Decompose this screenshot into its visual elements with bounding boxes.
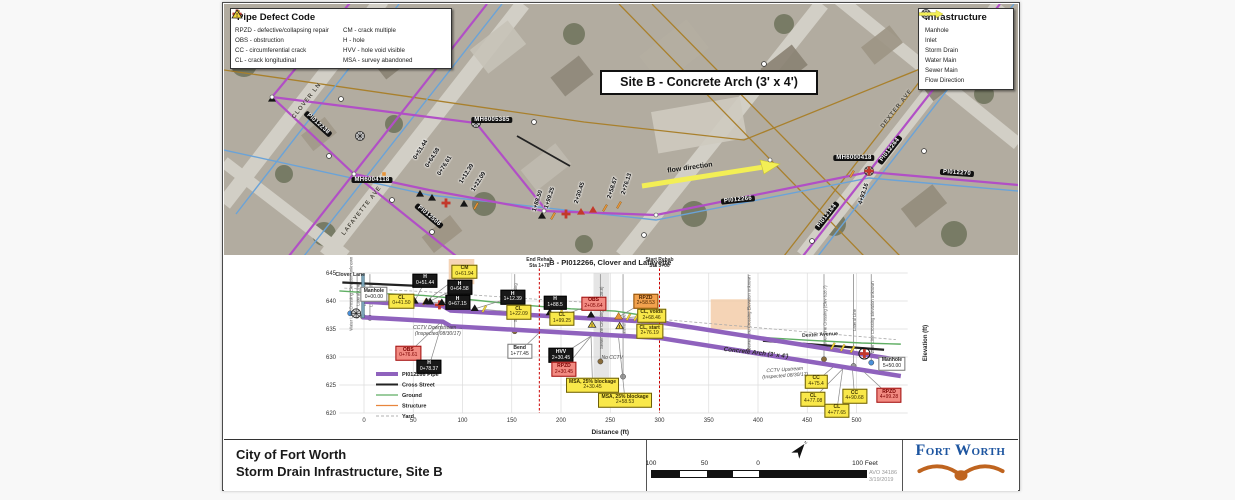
fort-worth-logo: Fort Worth	[903, 440, 1018, 491]
svg-text:Water Line Crossing Elevation: Water Line Crossing Elevation unknown	[870, 281, 875, 356]
defect-code-cl: CL - crack longitudinal	[233, 55, 341, 65]
map-marker-crossRed	[442, 199, 451, 208]
north-arrow-icon: N	[789, 441, 809, 461]
y-tick-label: 620	[326, 411, 337, 417]
infra-item-label: Flow Direction	[925, 77, 964, 84]
series-pipe-top	[362, 302, 901, 361]
x-tick-label: 450	[802, 418, 813, 424]
map-marker-manhole	[472, 119, 481, 128]
title-block-text: City of Fort Worth Storm Drain Infrastru…	[224, 440, 647, 491]
aerial-map: PI012238MH6005385MH6004118PI012506PI0122…	[224, 4, 1018, 256]
infra-item-label: Storm Drain	[925, 47, 958, 54]
pipe-defect-marker-dotTeal	[896, 358, 901, 363]
leader-line	[619, 338, 625, 400]
leader-line	[428, 287, 460, 302]
svg-text:350: 350	[704, 418, 715, 424]
map-marker-inlet	[339, 97, 344, 102]
leader-line	[853, 370, 855, 396]
pipe-defect-marker-triBlack	[546, 309, 554, 316]
leader-line	[520, 333, 539, 351]
svg-text:!: !	[236, 13, 238, 19]
page: PI012238MH6005385MH6004118PI012506PI0122…	[0, 0, 1235, 500]
defect-code-label: CL - crack longitudinal	[235, 57, 296, 64]
pipe-defect-legend-title: Pipe Defect Code	[231, 9, 451, 25]
svg-text:Ground: Ground	[402, 393, 422, 399]
svg-text:450: 450	[802, 418, 813, 424]
defect-code-label: H - hole	[343, 37, 365, 44]
map-marker-triBlack	[428, 194, 436, 201]
x-tick-label: 0	[362, 418, 366, 424]
map-marker-inlet	[327, 154, 332, 159]
x-tick-label: 500	[851, 418, 862, 424]
map-marker-dotWhite	[768, 158, 772, 162]
map-marker-manhole	[356, 132, 365, 141]
svg-text:100: 100	[457, 418, 468, 424]
infra-item-manhole: Manhole	[923, 25, 1009, 35]
leader-line	[816, 367, 833, 381]
map-marker-inlet	[762, 62, 767, 67]
defect-code-label: CC - circumferential crack	[235, 47, 306, 54]
defect-code-label: RPZD - defective/collapsing repair	[235, 27, 329, 34]
map-marker-inlet	[390, 198, 395, 203]
svg-text:150: 150	[507, 418, 518, 424]
map-marker-tickOrange	[616, 201, 621, 208]
scale-label: 50	[701, 460, 708, 467]
svg-text:630: 630	[326, 355, 337, 361]
scale-bar	[651, 470, 867, 478]
svg-text:250: 250	[605, 418, 616, 424]
x-tick-label: 250	[605, 418, 616, 424]
defect-code-rpzd: RPZD - defective/collapsing repair	[233, 25, 341, 35]
map-marker-tickOrange	[849, 170, 854, 177]
x-tick-label: 200	[556, 418, 567, 424]
map-marker-crossRed	[562, 210, 571, 219]
map-marker-dotWhite	[542, 209, 546, 213]
defect-code-obs: OBS - obstruction	[233, 35, 341, 45]
map-marker-triRed	[577, 208, 585, 215]
scale-label: 0	[756, 460, 760, 467]
svg-text:645: 645	[326, 271, 337, 277]
map-marker-sqOrange	[382, 172, 386, 176]
map-marker-inlet	[922, 149, 927, 154]
defect-code-hvv: HVV - hole void visible	[341, 45, 449, 55]
title-block: City of Fort Worth Storm Drain Infrastru…	[224, 439, 1018, 491]
map-marker-dotWhite	[270, 95, 274, 99]
map-marker-tickOrange	[550, 212, 555, 219]
x-tick-label: 350	[704, 418, 715, 424]
svg-text:PI012266 Pipe: PI012266 Pipe	[402, 372, 439, 378]
y-tick-label: 645	[326, 271, 337, 277]
map-marker-triBlack	[460, 200, 468, 207]
map-marker-inlet	[532, 120, 537, 125]
map-marker-inlet	[642, 233, 647, 238]
svg-text:0: 0	[362, 418, 366, 424]
y-tick-label: 640	[326, 299, 337, 305]
site-title: Site B - Concrete Arch (3' x 4')	[600, 70, 818, 95]
svg-text:Lateral Line: Lateral Line	[852, 308, 857, 331]
chart-title: B - PI012266, Clover and Lafayette	[549, 258, 671, 267]
x-tick-label: 300	[654, 418, 665, 424]
infra-item-storm-drain: Storm Drain	[923, 45, 1009, 55]
defect-code-cm: CM - crack multiple	[341, 25, 449, 35]
arrow-icon	[919, 9, 945, 19]
avo-number: AVO 34186	[869, 470, 897, 477]
svg-text:B - PI012266, Clover and Lafay: B - PI012266, Clover and Lafayette	[549, 258, 671, 267]
infra-item-inlet: Inlet	[923, 35, 1009, 45]
infra-item-label: Inlet	[925, 37, 937, 44]
map-marker-tickOrange	[473, 202, 478, 209]
leader-line	[564, 336, 591, 369]
drawing-sheet: PI012238MH6005385MH6004118PI012506PI0122…	[222, 2, 1020, 491]
defect-code-label: OBS - obstruction	[235, 37, 284, 44]
y-tick-label: 635	[326, 327, 337, 333]
infra-item-label: Sewer Main	[925, 67, 958, 74]
svg-text:200: 200	[556, 418, 567, 424]
utility-crossing: Lateral Line	[367, 274, 373, 320]
svg-text:Water Line Crossing Elevation: Water Line Crossing Elevation unknown	[349, 256, 354, 331]
leader-line	[813, 369, 843, 399]
defect-code-label: MSA - survey abandoned	[343, 57, 412, 64]
utility-crossing: Sewer Line Crossing Elevation unknown	[746, 274, 752, 354]
map-marker-dotWhite	[352, 172, 356, 176]
svg-text:400: 400	[753, 418, 764, 424]
pipe-defect-marker-crossCircled	[859, 348, 870, 359]
utility-crossing: Water Line Crossing Elevation unknown	[348, 256, 354, 331]
svg-text:Lateral Line: Lateral Line	[622, 314, 627, 337]
svg-text:Sewer Line Crossing (Elev 628.: Sewer Line Crossing (Elev 628.7)	[822, 285, 827, 348]
profile-plot: 6206256306356406450501001502002503003504…	[224, 255, 1018, 439]
map-marker-inlet	[430, 230, 435, 235]
sheet-title-line1: City of Fort Worth	[236, 447, 646, 464]
infra-item-flow-direction: Flow Direction	[923, 75, 1009, 85]
svg-text:Distance (ft): Distance (ft)	[591, 429, 629, 436]
infra-item-label: Manhole	[925, 27, 949, 34]
infra-item-sewer-main: Sewer Main	[923, 65, 1009, 75]
structure-area	[449, 259, 475, 284]
svg-text:Lateral Line: Lateral Line	[356, 283, 361, 306]
profile-chart: 6206256306356406450501001502002503003504…	[224, 255, 1018, 439]
map-marker-inlet	[810, 239, 815, 244]
pipe-defect-marker-triBlack	[411, 297, 419, 304]
y-axis-label: Elevation (ft)	[923, 325, 929, 361]
map-marker-dotWhite	[654, 213, 658, 217]
leader-line	[429, 324, 442, 367]
leader-line	[591, 336, 592, 385]
defect-code-h: H - hole	[341, 35, 449, 45]
leader-line	[837, 369, 843, 411]
x-tick-label: 400	[753, 418, 764, 424]
fort-worth-logo-text: Fort Worth	[903, 443, 1018, 459]
map-marker-triBlack	[416, 190, 424, 197]
svg-text:Elevation (ft): Elevation (ft)	[923, 325, 929, 361]
x-tick-label: 100	[457, 418, 468, 424]
svg-text:625: 625	[326, 383, 337, 389]
svg-text:620: 620	[326, 411, 337, 417]
warn-icon: !	[231, 9, 243, 19]
x-axis-label: Distance (ft)	[591, 429, 629, 436]
svg-text:640: 640	[326, 299, 337, 305]
defect-code-cc: CC - circumferential crack	[233, 45, 341, 55]
defect-code-label: HVV - hole void visible	[343, 47, 405, 54]
map-marker-triRed	[589, 206, 597, 213]
leader-line	[561, 336, 591, 355]
scale-area: N 100500100 Feet AVO 34186 3/19/2019	[647, 440, 903, 491]
x-tick-label: 150	[507, 418, 518, 424]
svg-text:500: 500	[851, 418, 862, 424]
svg-text:Yard: Yard	[402, 414, 414, 420]
defect-code-msa: !MSA - survey abandoned	[341, 55, 449, 65]
map-marker-tickOrange	[602, 204, 607, 211]
svg-text:Structure: Structure	[402, 404, 426, 410]
infra-item-label: Water Main	[925, 57, 956, 64]
drawing-meta: AVO 34186 3/19/2019	[869, 470, 897, 484]
defect-code-label: CM - crack multiple	[343, 27, 396, 34]
sheet-title-line2: Storm Drain Infrastructure, Site B	[236, 464, 646, 481]
pipe-defect-legend: Pipe Defect Code RPZD - defective/collap…	[230, 8, 452, 69]
svg-text:Cross Street: Cross Street	[402, 383, 435, 389]
svg-text:635: 635	[326, 327, 337, 333]
infrastructure-legend: Infrastructure ManholeInletStorm DrainWa…	[918, 8, 1014, 90]
svg-text:300: 300	[654, 418, 665, 424]
y-tick-label: 630	[326, 355, 337, 361]
longhorn-icon	[905, 459, 1017, 485]
drawing-date: 3/19/2019	[869, 477, 897, 484]
infra-item-water-main: Water Main	[923, 55, 1009, 65]
scale-label: 100	[646, 460, 657, 467]
y-tick-label: 625	[326, 383, 337, 389]
scale-label: 100 Feet	[852, 460, 878, 467]
